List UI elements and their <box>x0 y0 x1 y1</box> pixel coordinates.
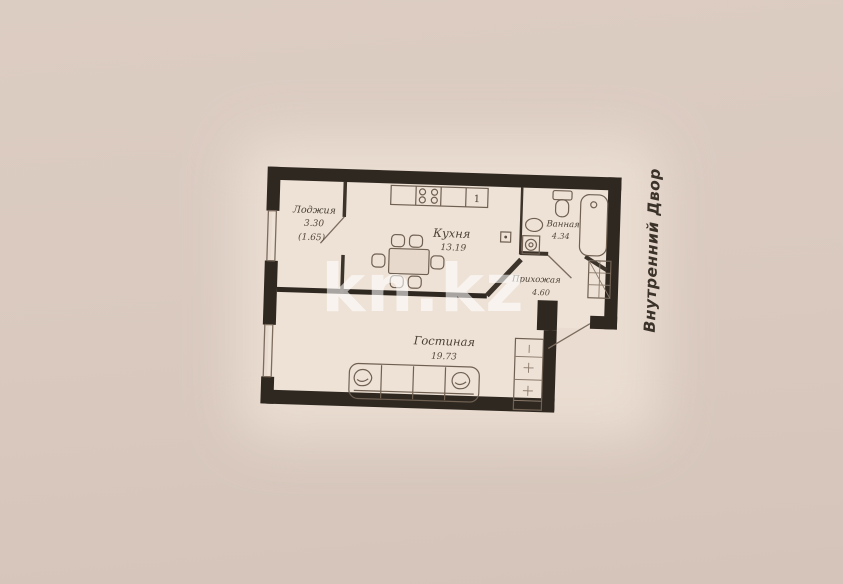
loggia-reduced-area: (1.65) <box>298 232 326 244</box>
wall-loggia-stub-top <box>344 182 345 217</box>
loggia-name: Лоджия <box>292 204 336 216</box>
wall-left-segment-3 <box>260 376 274 403</box>
hallway-area: 4.60 <box>531 288 550 298</box>
living-room-name: Гостиная <box>413 333 476 349</box>
wall-left-segment-2 <box>263 260 278 324</box>
bathroom-area: 4.34 <box>551 231 570 241</box>
living-room-area: 19.73 <box>431 352 457 363</box>
wall-left-segment-1 <box>266 167 280 211</box>
wall-entrance-cap <box>590 316 617 330</box>
wall-hall-post <box>537 300 558 331</box>
stove-unit-marker: 1 <box>473 194 480 205</box>
kitchen-name: Кухня <box>432 226 471 241</box>
kn-kz-watermark: kn.kz <box>318 250 528 327</box>
bathroom-name: Ванная <box>545 219 580 230</box>
courtyard-label: Внутренний Двор <box>641 168 664 333</box>
photo-background: 1 <box>0 0 843 584</box>
loggia-area: 3.30 <box>304 219 325 230</box>
